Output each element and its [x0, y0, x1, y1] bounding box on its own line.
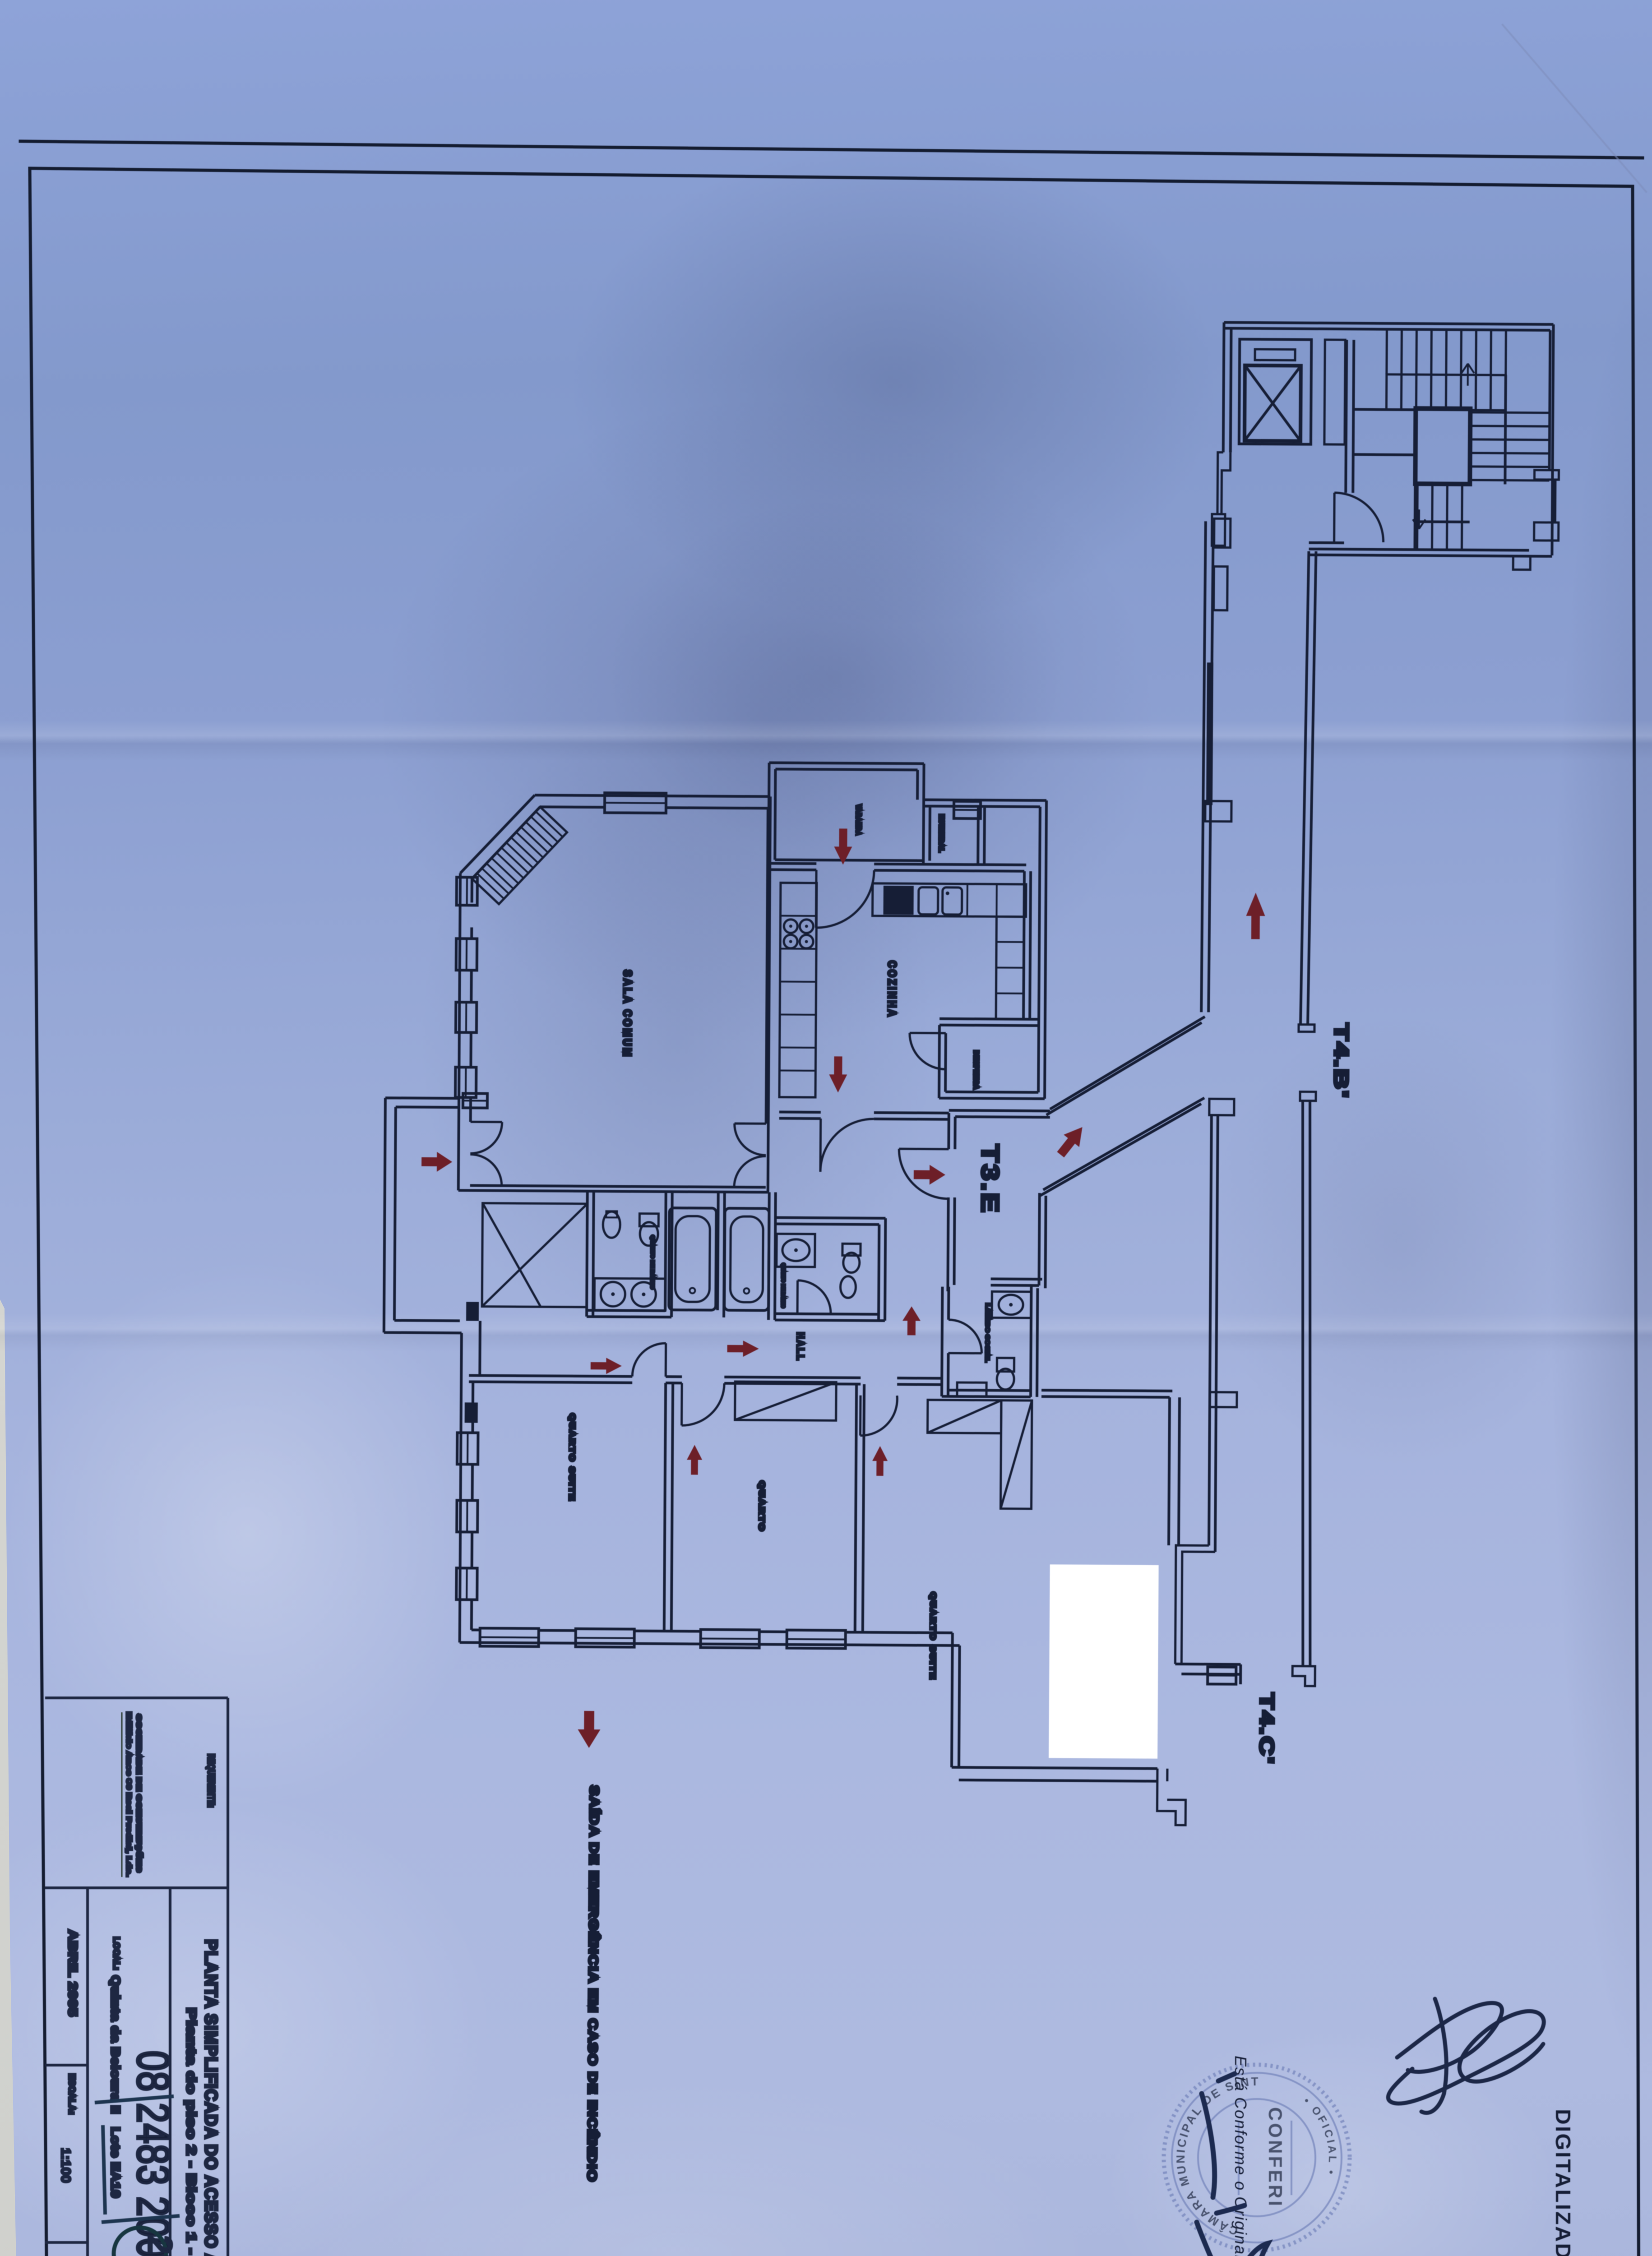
- svg-text:T4.B': T4.B': [1330, 1023, 1352, 1099]
- svg-text:LOCAL:: LOCAL:: [112, 1937, 121, 1970]
- svg-text:ABRIL 2005: ABRIL 2005: [66, 1930, 80, 2017]
- svg-text:ESTENDAL: ESTENDAL: [937, 814, 945, 853]
- svg-text:REQUERENTE:: REQUERENTE:: [206, 1754, 216, 1808]
- svg-text:Quinta da Beloura II Lote EA: Quinta da Beloura II Lote EA10: [109, 1975, 122, 2198]
- svg-text:DESPENSA: DESPENSA: [972, 1050, 980, 1090]
- svg-text:1:100: 1:100: [59, 2148, 73, 2183]
- svg-text:CONFERI: CONFERI: [1265, 2107, 1286, 2208]
- svg-text:QUARTO: QUARTO: [757, 1481, 766, 1532]
- svg-text:QUARTO SUITE: QUARTO SUITE: [928, 1592, 937, 1681]
- svg-text:LAVABO SOCIAL: LAVABO SOCIAL: [984, 1304, 990, 1362]
- svg-text:T4.C': T4.C': [1255, 1693, 1278, 1765]
- svg-text:DIGITALIZADO: DIGITALIZADO: [1551, 2109, 1575, 2256]
- svg-text:T3.E: T3.E: [976, 1144, 1004, 1214]
- svg-text:SALA COMUM: SALA COMUM: [621, 970, 634, 1058]
- svg-text:ESCALA:: ESCALA:: [67, 2074, 76, 2115]
- svg-text:Está Conforme o Original: Está Conforme o Original: [1231, 2056, 1250, 2256]
- svg-text:QUARTO DE BANHO: QUARTO DE BANHO: [780, 1263, 786, 1308]
- svg-text:21: 21: [142, 2236, 178, 2256]
- svg-text:SOCIEDADE DE CONSTRUÇÕES: SOCIEDADE DE CONSTRUÇÕES: [135, 1715, 143, 1872]
- svg-text:CÂMARA MUNICIPAL DE SINTRA: CÂMARA MUNICIPAL DE SINTRA: [0, 0, 1260, 2238]
- svg-text:08 2483 2001 FTH: 08 2483 2001 FTH: [128, 2051, 178, 2256]
- svg-text:Planta do piso 2 - Bloco 1 - T: Planta do piso 2 - Bloco 1 - T3 E: [184, 2008, 199, 2256]
- svg-text:QUARTO SUITE: QUARTO SUITE: [568, 1414, 577, 1502]
- svg-text:QUARTO DE BANHO: QUARTO DE BANHO: [649, 1235, 655, 1290]
- svg-text:PLANTA SIMPLIFICADA DO ACESSO: PLANTA SIMPLIFICADA DO ACESSO AO FOGO: [201, 1939, 220, 2256]
- svg-text:HALL: HALL: [795, 1332, 806, 1362]
- svg-text:Edifício Anos 90 Real Predial,: Edifício Anos 90 Real Predial, Lda.: [125, 1712, 133, 1877]
- svg-text:COZINHA: COZINHA: [885, 961, 898, 1018]
- svg-text:VARANDA: VARANDA: [855, 804, 862, 836]
- svg-text:SAÍDA DE EMERGÊNCIA EM CASO DE: SAÍDA DE EMERGÊNCIA EM CASO DE INCÊNDIO: [585, 1785, 601, 2182]
